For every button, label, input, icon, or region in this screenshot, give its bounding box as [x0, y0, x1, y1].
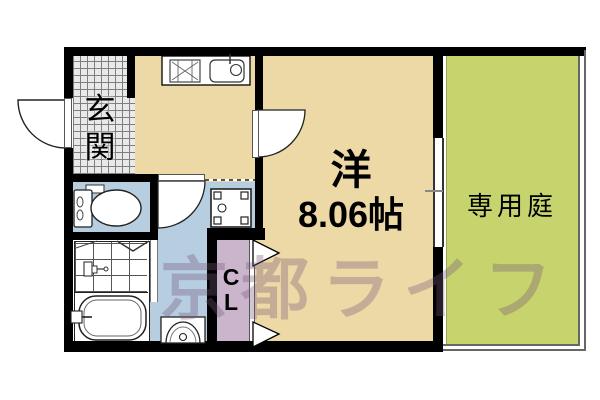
western-room-type: 洋 — [263, 146, 439, 194]
genkan-label-char1: 玄 — [83, 92, 117, 128]
kitchen-counter — [162, 54, 250, 85]
toilet-icon — [74, 185, 141, 227]
shower-faucet-icon — [84, 262, 108, 276]
washroom-door-arc — [158, 175, 205, 229]
floorplan-canvas: 玄 関 洋 8.06帖 C L 専用庭 京都ライフ — [0, 0, 600, 400]
bath-fold-door — [76, 241, 149, 251]
bathtub-icon — [71, 296, 146, 340]
western-room-label: 洋 8.06帖 — [263, 146, 439, 236]
entry-door-arc — [18, 99, 72, 149]
western-room-size: 8.06帖 — [263, 194, 439, 236]
washing-machine-pan-icon — [211, 189, 251, 227]
genkan-label-char2: 関 — [83, 130, 117, 166]
garden-label: 専用庭 — [446, 186, 578, 223]
gas-stove-icon — [170, 60, 200, 82]
watermark-text: 京都ライフ — [160, 254, 565, 326]
